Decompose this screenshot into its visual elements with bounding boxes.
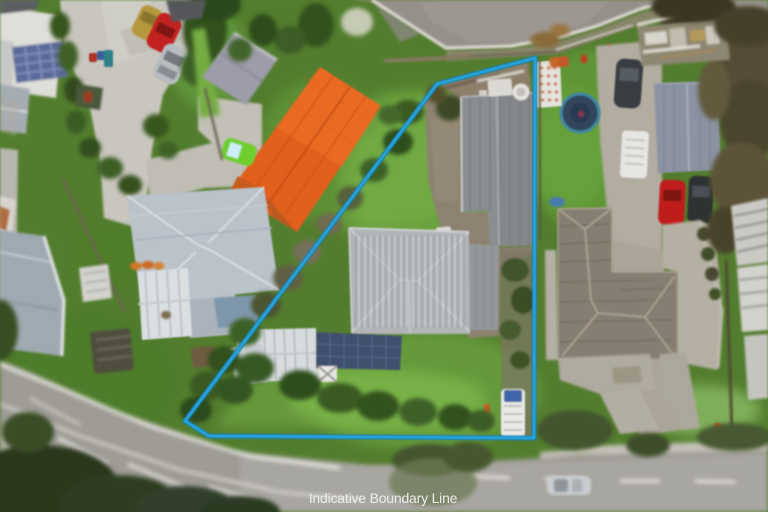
svg-text:Indicative Boundary Line: Indicative Boundary Line [309, 490, 458, 506]
